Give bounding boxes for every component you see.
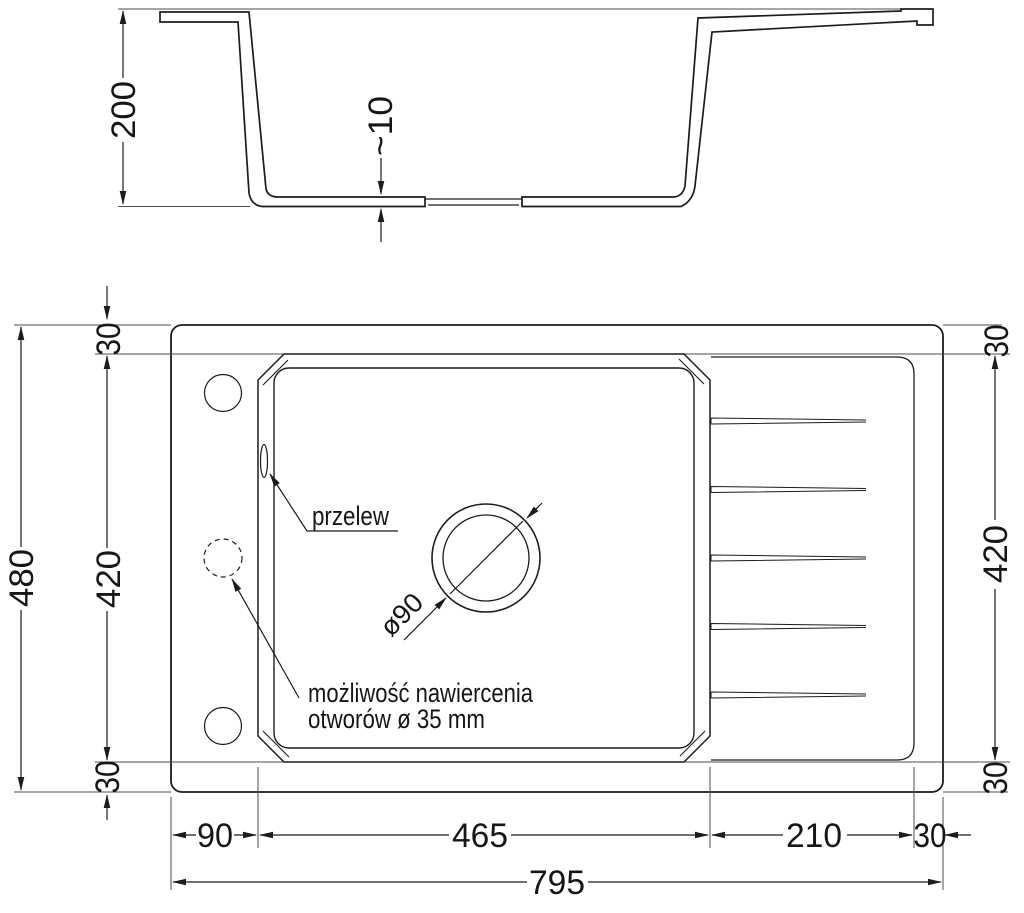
dim-30-bl-label: 30 [89, 761, 127, 794]
overflow-slot [261, 445, 268, 478]
extension-lines [14, 325, 1008, 890]
sink-drawing-svg: 200 ~10 [0, 0, 1024, 913]
dim-210: 210 [712, 817, 912, 855]
plan-view: przelew ø90 możliwość nawiercenia otworó… [3, 286, 1016, 902]
dim-480-label: 480 [3, 549, 41, 607]
rib-5 [711, 692, 866, 698]
dim-90-label: 90 [197, 817, 233, 855]
dim-200: 200 [105, 11, 250, 207]
tap-hole-bottom [205, 708, 242, 745]
dim-420-left: 420 [90, 356, 128, 760]
tap-hole-top [205, 375, 242, 412]
dim-420-left-label: 420 [90, 550, 128, 608]
section-drain-recess [425, 199, 522, 205]
bevel-top-right [679, 359, 704, 384]
dim-30-tr-label: 30 [978, 325, 1016, 358]
dim-465: 465 [260, 817, 708, 855]
dim-30-br-label: 30 [977, 762, 1015, 795]
dim-30-bottom-left: 30 [89, 761, 127, 821]
dim-10: ~10 [362, 96, 400, 242]
drain-diameter-arrow-upper [527, 503, 542, 518]
drill-note-leader [232, 579, 299, 698]
rib-3 [711, 555, 866, 561]
dim-30-tl-label: 30 [90, 323, 128, 356]
dim-10-label: ~10 [362, 96, 400, 156]
rib-2 [711, 487, 866, 493]
dim-420-right-label: 420 [977, 525, 1015, 583]
drain-diameter-label: ø90 [374, 587, 429, 642]
drainer-ribs [711, 418, 866, 698]
sink-outline [171, 325, 943, 792]
dim-30-top-left: 30 [90, 286, 128, 356]
dim-210-label: 210 [786, 817, 842, 855]
dim-30-h-label: 30 [914, 817, 947, 855]
drill-note-line2: otworów ø 35 mm [308, 704, 485, 734]
dim-480-left: 480 [3, 327, 41, 790]
rib-1 [711, 418, 866, 424]
dim-795-label: 795 [529, 864, 585, 902]
drainer-outline [711, 357, 914, 760]
technical-drawing-page: 200 ~10 [0, 0, 1024, 913]
bevel-bottom-right [680, 731, 705, 756]
dim-30-bottom-h: 30 [914, 817, 972, 855]
dim-200-label: 200 [105, 81, 143, 139]
drain-diameter-chord [450, 521, 523, 594]
rib-4 [711, 624, 866, 630]
section-right-wall-drainer [522, 9, 933, 207]
dim-420-right: 420 [977, 356, 1015, 760]
section-view: 200 ~10 [105, 9, 933, 242]
bevel-top-left [263, 360, 288, 385]
overflow-label: przelew [312, 501, 389, 531]
tap-hole-optional-dashed [204, 539, 242, 577]
dim-30-bottom-right-v: 30 [977, 762, 1015, 795]
drain-hole: ø90 [374, 503, 542, 642]
dim-465-label: 465 [452, 817, 508, 855]
drill-note-callout: możliwość nawiercenia otworów ø 35 mm [232, 579, 534, 734]
overflow-callout: przelew [270, 474, 398, 531]
dim-90: 90 [173, 817, 256, 855]
dim-30-top-right: 30 [978, 325, 1016, 358]
dim-795: 795 [173, 864, 941, 902]
